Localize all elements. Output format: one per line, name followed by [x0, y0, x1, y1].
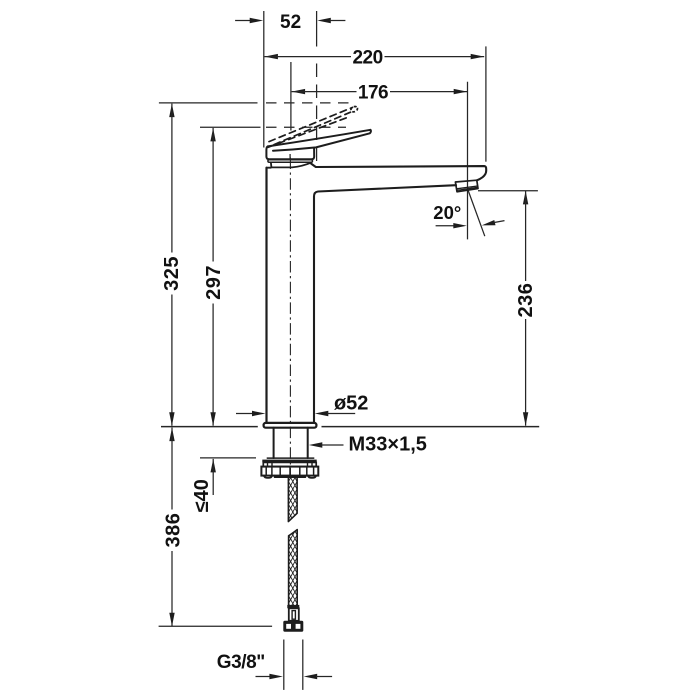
svg-text:325: 325 [161, 256, 183, 291]
svg-text:236: 236 [515, 283, 537, 318]
svg-text:52: 52 [280, 12, 301, 33]
svg-text:≤40: ≤40 [191, 479, 213, 512]
svg-text:M33×1,5: M33×1,5 [349, 433, 427, 455]
svg-text:G3/8": G3/8" [217, 652, 265, 673]
svg-text:297: 297 [203, 265, 225, 300]
svg-text:220: 220 [352, 48, 382, 69]
svg-text:20°: 20° [433, 202, 461, 223]
svg-text:176: 176 [358, 83, 388, 104]
svg-text:386: 386 [163, 513, 185, 548]
svg-text:ø52: ø52 [334, 393, 368, 415]
